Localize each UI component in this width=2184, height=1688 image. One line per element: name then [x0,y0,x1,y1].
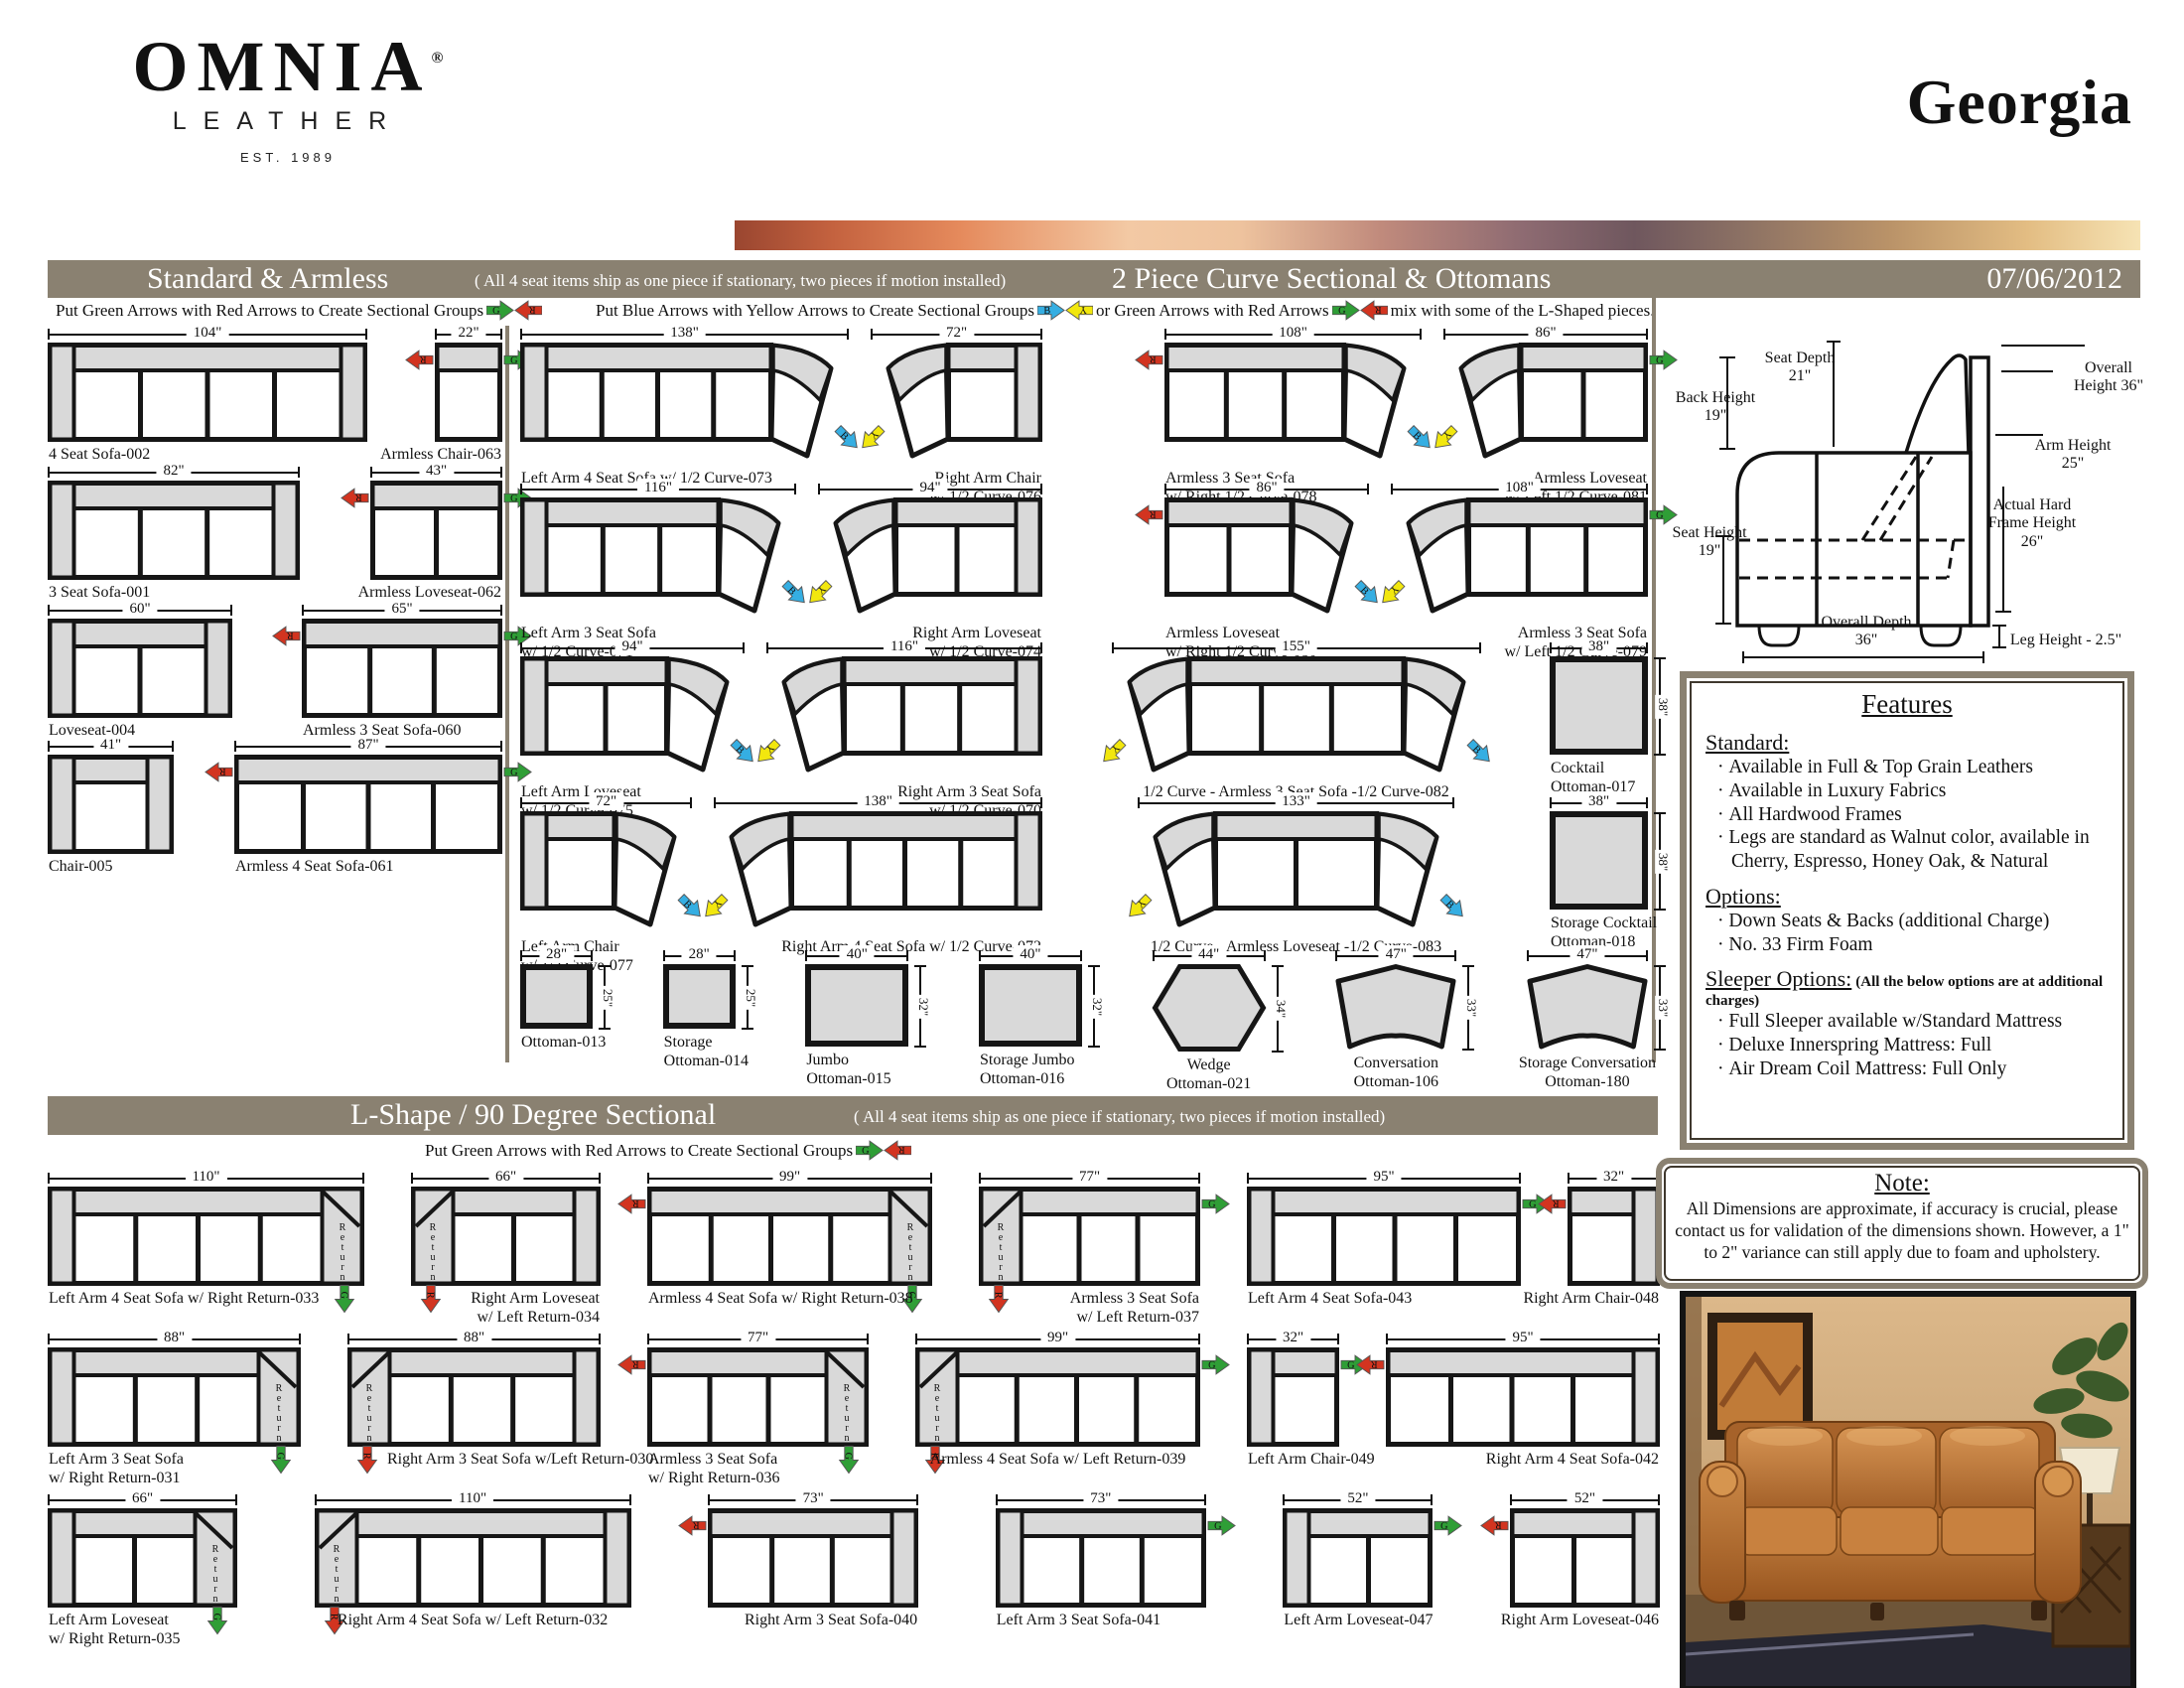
diagram-right-arm-loveseat-046: 52"RRight Arm Loveseat-046 [1510,1493,1660,1609]
green-arrow-icon: G [1208,1515,1236,1536]
diagram-armless-chair-063: 22"RGArmless Chair-063 [435,328,502,443]
diagram-conversation-ottoman-106: 47"33"ConversationOttoman-106 [1335,949,1456,1051]
diagram-label: Right Arm 4 Seat Sofa w/ Left Return-032 [338,1611,608,1629]
diagram-storage-ottoman-014: 28"25"StorageOttoman-014 [663,949,736,1030]
yellow-arrow-icon: Y [753,742,781,763]
svg-text:R: R [693,1519,700,1530]
diagram-left-arm-3-seat-sofa-w-right-return-031: 88"ReturnGLeft Arm 3 Seat Sofaw/ Right R… [48,1333,301,1448]
svg-text:R: R [1495,1519,1502,1530]
dim-overall-depth: Overall Depth 36" [1819,614,1914,650]
diagram-label: StorageOttoman-014 [664,1033,749,1070]
feature-item: No. 33 Firm Foam [1706,933,2109,957]
width-dimension: 47" [1335,949,1456,963]
height-dimension: 33" [1653,965,1667,1051]
width-dimension: 38" [1550,796,1648,810]
standard-armless-title: Standard & Armless [147,262,388,296]
width-dimension: 116" [520,483,796,496]
diagram-label: Left Arm 4 Seat Sofa-043 [1248,1289,1412,1308]
width-dimension: 138" [714,796,1042,810]
diagram-3-seat-sofa-001: 82"3 Seat Sofa-001 [48,466,300,581]
svg-text:G: G [510,493,518,504]
yellow-arrow-icon: Y [1065,300,1093,321]
height-dimension: 34" [1271,965,1285,1053]
diagram-label: Right Arm Chair-048 [1523,1289,1659,1308]
width-dimension: 108" [1391,483,1648,496]
diagram-left-arm-3-seat-sofa-041: 73"GLeft Arm 3 Seat Sofa-041 [996,1493,1206,1609]
diagram-left-arm-4-seat-sofa-w-right-return-033: 110"ReturnGLeft Arm 4 Seat Sofa w/ Right… [48,1172,364,1287]
feature-item: Deluxe Innerspring Mattress: Full [1706,1034,2109,1057]
diagram-armless-3-seat-sofa-w-left-return-037: 77"ReturnGRArmless 3 Seat Sofaw/ Left Re… [979,1172,1200,1287]
svg-text:n: n [845,1433,850,1444]
svg-text:R: R [420,353,427,364]
width-dimension: 52" [1283,1493,1433,1507]
diagram-label: Armless 4 Seat Sofa w/ Left Return-039 [930,1450,1186,1469]
red-arrow-icon: R [1135,504,1162,525]
diagram-label: Armless 4 Seat Sofa w/ Right Return-038 [648,1289,913,1308]
width-dimension: 95" [1247,1172,1521,1186]
red-arrow-icon: R [1480,1515,1508,1536]
svg-text:G: G [1208,1360,1216,1371]
standard-armless-subtitle: ( All 4 seat items ship as one piece if … [475,271,1006,291]
width-dimension: 86" [1164,483,1369,496]
divider-standard-curve [505,326,509,1062]
diagram-armless-3-seat-sofa-w-right-return-036: 77"ReturnRGArmless 3 Seat Sofaw/ Right R… [647,1333,869,1448]
diagram-1-2-curve-armless-loveseat-1-2-curve-083: 133"BY1/2 Curve - Armless Loveseat -1/2 … [1138,796,1454,935]
diagram-left-arm-4-seat-sofa-043: 95"GLeft Arm 4 Seat Sofa-043 [1247,1172,1521,1287]
height-dimension: 32" [1087,965,1101,1048]
sofa-photo [1680,1291,2136,1688]
red-arrow-icon: R [1356,1354,1384,1375]
section-bar-lshape: L-Shape / 90 Degree Sectional ( All 4 se… [48,1096,1658,1135]
features-group: Standard:Available in Full & Top Grain L… [1706,730,2109,874]
svg-text:G: G [1347,1360,1355,1371]
width-dimension: 94" [818,483,1042,496]
diagram-label: Storage JumboOttoman-016 [980,1051,1075,1088]
diagram-chair-005: 41"Chair-005 [48,740,174,855]
width-dimension: 47" [1527,949,1648,963]
yellow-arrow-icon: Y [1125,897,1153,917]
red-arrow-icon: R [678,1515,706,1536]
brand-est: EST. 1989 [79,150,496,165]
svg-text:G: G [842,1453,853,1461]
red-arrow-icon: R [985,1289,1013,1310]
width-dimension: 73" [996,1493,1206,1507]
diagram-armless-3-seat-sofa-w-right-1-2-curve-078: 108"RBArmless 3 Seat Sofaw/ Right 1/2 Cu… [1164,328,1422,467]
green-arrow-icon: G [267,1450,295,1471]
diagram-armless-3-seat-sofa-060: 65"RGArmless 3 Seat Sofa-060 [302,604,502,719]
width-dimension: 82" [48,466,300,480]
red-arrow-icon: R [417,1289,445,1310]
svg-text:R: R [632,1197,639,1208]
brand-sub: LEATHER [79,107,496,136]
width-dimension: 44" [1153,949,1266,963]
height-dimension: 32" [913,965,927,1048]
diagram-label: Armless 3 Seat Sofaw/ Right Return-036 [648,1450,779,1487]
red-arrow-icon: R [514,300,542,321]
width-dimension: 65" [302,604,502,618]
red-arrow-icon: R [884,1140,911,1161]
dim-leg-height: Leg Height - 2.5" [1991,632,2140,649]
width-dimension: 72" [871,328,1042,342]
diagram-storage-cocktail-ottoman-018: 38"38"Storage CocktailOttoman-018 [1550,796,1648,911]
red-arrow-icon: R [617,1354,645,1375]
diagram-label: Storage ConversationOttoman-180 [1519,1054,1656,1091]
features-box: Features Standard:Available in Full & To… [1680,671,2134,1150]
svg-text:G: G [1656,355,1664,366]
diagram-label: Right Arm Loveseat-046 [1501,1611,1659,1629]
features-group: Options:Down Seats & Backs (additional C… [1706,884,2109,957]
instruction-standard: Put Green Arrows with Red Arrows to Crea… [56,300,539,321]
diagram-label: Right Arm 3 Seat Sofa-040 [745,1611,917,1629]
feature-item: Full Sleeper available w/Standard Mattre… [1706,1010,2109,1034]
diagram-right-arm-4-seat-sofa-042: 95"RRight Arm 4 Seat Sofa-042 [1386,1333,1660,1448]
svg-text:n: n [277,1433,282,1444]
green-arrow-icon: G [856,1140,884,1161]
diagram-label: CocktailOttoman-017 [1551,759,1635,796]
svg-text:R: R [1371,1358,1378,1369]
height-dimension: 33" [1461,965,1475,1051]
diagram-jumbo-ottoman-015: 40"32"JumboOttoman-015 [805,949,908,1048]
width-dimension: 32" [1568,1172,1660,1186]
width-dimension: 99" [915,1333,1200,1346]
width-dimension: 88" [347,1333,601,1346]
feature-item: Available in Luxury Fabrics [1706,779,2109,803]
width-dimension: 22" [435,328,502,342]
diagram-label: Left Arm Loveseatw/ Right Return-035 [49,1611,180,1648]
svg-text:Y: Y [1079,304,1087,315]
svg-text:R: R [355,492,362,502]
svg-text:G: G [510,355,518,366]
diagram-label: Left Arm 3 Seat Sofa-041 [997,1611,1160,1629]
diagram-right-arm-4-seat-sofa-w-left-return-032: 110"ReturnRRight Arm 4 Seat Sofa w/ Left… [315,1493,631,1609]
svg-text:G: G [210,1614,221,1621]
width-dimension: 66" [411,1172,601,1186]
svg-text:n: n [334,1594,339,1605]
svg-text:G: G [510,632,518,642]
svg-text:G: G [1338,306,1346,317]
dim-back-height: Back Height 19" [1670,389,1761,426]
svg-text:n: n [431,1272,436,1283]
svg-text:G: G [1440,1521,1448,1532]
green-arrow-icon: G [1202,1194,1230,1214]
width-dimension: 28" [520,949,593,963]
diagram-wedge-ottoman-021: 44"34"WedgeOttoman-021 [1153,949,1266,1053]
width-dimension: 32" [1247,1333,1339,1346]
red-arrow-icon: R [1538,1194,1566,1214]
diagram-left-arm-3-seat-sofa-w-1-2-curve-071: 116"BLeft Arm 3 Seat Sofaw/ 1/2 Curve-07… [520,483,796,622]
svg-text:n: n [935,1433,940,1444]
width-dimension: 40" [805,949,908,963]
svg-text:n: n [367,1433,372,1444]
diagram-right-arm-3-seat-sofa-w-1-2-curve-070: 116"YRight Arm 3 Seat Sofaw/ 1/2 Curve-0… [766,641,1042,780]
green-arrow-icon: G [331,1289,358,1310]
width-dimension: 43" [370,466,502,480]
svg-text:n: n [999,1272,1004,1283]
note-box: Note: All Dimensions are approximate, if… [1656,1158,2148,1289]
blue-arrow-icon: B [1439,897,1467,917]
width-dimension: 72" [520,796,692,810]
diagram-right-arm-3-seat-sofa-040: 73"RRight Arm 3 Seat Sofa-040 [708,1493,918,1609]
red-arrow-icon: R [405,350,433,370]
diagram-label: Left Arm 4 Seat Sofa w/ Right Return-033 [49,1289,319,1308]
diagram-left-arm-chair-w-1-2-curve-077: 72"BLeft Arm Chairw/ 1/2 Curve-077 [520,796,692,935]
width-dimension: 60" [48,604,232,618]
svg-text:R: R [1374,304,1381,315]
lshape-subtitle: ( All 4 seat items ship as one piece if … [854,1107,1385,1127]
yellow-arrow-icon: Y [805,583,833,604]
width-dimension: 116" [766,641,1042,655]
width-dimension: 87" [234,740,502,754]
width-dimension: 94" [520,641,745,655]
width-dimension: 52" [1510,1493,1660,1507]
dim-frame-height: Actual Hard Frame Height 26" [1985,496,2079,551]
diagram-label: Right Arm Loveseatw/ Left Return-034 [471,1289,600,1327]
sheet-date: 07/06/2012 [1986,262,2122,296]
diagram-label: Armless Loveseat-062 [358,583,501,602]
diagram-right-arm-loveseat-w-left-return-034: 66"ReturnRRight Arm Loveseatw/ Left Retu… [411,1172,601,1287]
feature-item: Available in Full & Top Grain Leathers [1706,756,2109,779]
diagram-left-arm-chair-049: 32"GLeft Arm Chair-049 [1247,1333,1339,1448]
feature-item: Down Seats & Backs (additional Charge) [1706,910,2109,933]
diagram-right-arm-4-seat-sofa-w-1-2-curve-072: 138"YRight Arm 4 Seat Sofa w/ 1/2 Curve-… [714,796,1042,935]
svg-text:G: G [862,1146,870,1157]
svg-text:R: R [424,1292,435,1299]
diagram-left-arm-4-seat-sofa-w-1-2-curve-073: 138"BLeft Arm 4 Seat Sofa w/ 1/2 Curve-0… [520,328,849,467]
feature-item: All Hardwood Frames [1706,803,2109,827]
section-bar-standard-curve: Standard & Armless ( All 4 seat items sh… [48,260,2140,298]
diagram-left-arm-loveseat-w-right-return-035: 66"ReturnGLeft Arm Loveseatw/ Right Retu… [48,1493,237,1609]
width-dimension: 110" [315,1493,631,1507]
svg-text:R: R [360,1453,371,1460]
width-dimension: 95" [1386,1333,1660,1346]
registered-mark: ® [432,50,444,67]
red-arrow-icon: R [617,1194,645,1214]
spec-sheet-page: OMNIA® LEATHER EST. 1989 Georgia Standar… [0,0,2184,1688]
note-title: Note: [1874,1170,1930,1197]
width-dimension: 38" [1550,641,1648,655]
width-dimension: 88" [48,1333,301,1346]
width-dimension: 73" [708,1493,918,1507]
svg-text:G: G [338,1292,348,1300]
svg-text:G: G [1529,1199,1537,1210]
red-arrow-icon: R [272,626,300,646]
dim-arm-height: Arm Height 25" [2031,437,2115,474]
red-arrow-icon: R [353,1450,381,1471]
features-title: Features [1706,689,2109,720]
diagram-cocktail-ottoman-017: 38"38"CocktailOttoman-017 [1550,641,1648,756]
svg-text:R: R [1150,353,1157,364]
svg-text:R: R [219,766,226,776]
brand-name: OMNIA® [79,30,496,105]
diagram-armless-4-seat-sofa-061: 87"RGArmless 4 Seat Sofa-061 [234,740,502,855]
svg-text:R: R [898,1144,905,1155]
green-arrow-icon: G [204,1611,231,1631]
svg-text:R: R [632,1358,639,1369]
feature-item: Legs are standard as Walnut color, avail… [1706,826,2109,874]
blue-arrow-icon: B [1037,300,1065,321]
svg-text:G: G [1208,1199,1216,1210]
dim-overall-height: Overall Height 36" [2067,359,2150,396]
width-dimension: 99" [647,1172,932,1186]
diagram-label: Left Arm Loveseat-047 [1284,1611,1433,1629]
green-arrow-icon: G [1434,1515,1462,1536]
features-group: Sleeper Options: (All the below options … [1706,966,2109,1080]
width-dimension: 138" [520,328,849,342]
diagram-label: Left Arm Chair-049 [1248,1450,1375,1469]
svg-text:R: R [1150,508,1157,519]
instruction-curve: Put Blue Arrows with Yellow Arrows to Cr… [596,300,1654,321]
red-arrow-icon: R [1360,300,1388,321]
width-dimension: 66" [48,1493,237,1507]
svg-text:R: R [287,630,294,640]
diagram-right-arm-3-seat-sofa-w-left-return-030: 88"ReturnRRight Arm 3 Seat Sofa w/Left R… [347,1333,601,1448]
height-dimension: 38" [1653,812,1667,911]
diagram-1-2-curve-armless-3-seat-sofa-1-2-curve-082: 155"BY1/2 Curve - Armless 3 Seat Sofa -1… [1112,641,1481,780]
width-dimension: 133" [1138,796,1454,810]
diagram-right-arm-loveseat-w-1-2-curve-074: 94"YRight Arm Loveseatw/ 1/2 Curve-074 [818,483,1042,622]
dim-seat-height: Seat Height 19" [1670,524,1749,561]
leather-gradient-strip [735,220,2140,250]
diagram-armless-4-seat-sofa-w-left-return-039: 99"ReturnGRArmless 4 Seat Sofa w/ Left R… [915,1333,1200,1448]
green-arrow-icon: G [1202,1354,1230,1375]
diagram-armless-loveseat-w-right-1-2-curve-080: 86"RBArmless Loveseatw/ Right 1/2 Curve-… [1164,483,1369,622]
yellow-arrow-icon: Y [1099,742,1127,763]
diagram-label: Left Arm 3 Seat Sofaw/ Right Return-031 [49,1450,184,1487]
dim-seat-depth: Seat Depth 21" [1760,350,1840,386]
note-text: All Dimensions are approximate, if accur… [1674,1198,2130,1264]
svg-text:B: B [1043,306,1050,317]
diagram-right-arm-chair-048: 32"RRight Arm Chair-048 [1568,1172,1660,1287]
width-dimension: 77" [979,1172,1200,1186]
diagram-label: Right Arm 3 Seat Sofa w/Left Return-030 [387,1450,653,1469]
green-arrow-icon: G [1332,300,1360,321]
svg-text:n: n [341,1272,345,1283]
curve-section-title: 2 Piece Curve Sectional & Ottomans [1112,262,1551,296]
width-dimension: 110" [48,1172,364,1186]
svg-text:R: R [992,1292,1003,1299]
page-title: Georgia [1537,66,2132,139]
width-dimension: 155" [1112,641,1481,655]
height-dimension: 25" [598,965,612,1030]
diagram-armless-loveseat-062: 43"RGArmless Loveseat-062 [370,466,502,581]
width-dimension: 108" [1164,328,1422,342]
blue-arrow-icon: B [1466,742,1494,763]
green-arrow-icon: G [486,300,514,321]
diagram-storage-conversation-ottoman-180: 47"33"Storage ConversationOttoman-180 [1527,949,1648,1051]
width-dimension: 77" [647,1333,869,1346]
yellow-arrow-icon: Y [1431,428,1458,449]
diagram-label: ConversationOttoman-106 [1354,1054,1438,1091]
height-dimension: 25" [741,965,754,1030]
diagram-armless-loveseat-w-left-1-2-curve-081: 86"GYArmless Loveseatw/ Left 1/2 Curve-0… [1443,328,1648,467]
svg-text:G: G [274,1453,285,1461]
svg-text:n: n [908,1272,913,1283]
diagram-label: Armless 4 Seat Sofa-061 [235,857,394,876]
svg-text:n: n [213,1594,218,1605]
diagram-label: Armless 3 Seat Sofaw/ Left Return-037 [1070,1289,1199,1327]
width-dimension: 41" [48,740,174,754]
red-arrow-icon: R [1135,350,1162,370]
diagram-left-arm-loveseat-047: 52"GLeft Arm Loveseat-047 [1283,1493,1433,1609]
diagram-left-arm-loveseat-w-1-2-curve-075: 94"BLeft Arm Loveseatw/ 1/2 Curve-075 [520,641,745,780]
width-dimension: 28" [663,949,736,963]
diagram-label: JumboOttoman-015 [806,1051,890,1088]
svg-text:G: G [510,768,518,778]
height-dimension: 38" [1653,657,1667,756]
brand-logo: OMNIA® LEATHER EST. 1989 [79,30,496,165]
width-dimension: 86" [1443,328,1648,342]
diagram-right-arm-chair-w-1-2-curve-076: 72"YRight Arm Chairw/ 1/2 Curve-076 [871,328,1042,467]
red-arrow-icon: R [341,488,368,508]
lshape-title: L-Shape / 90 Degree Sectional [350,1098,716,1132]
diagram-label: Chair-005 [49,857,113,876]
green-arrow-icon: G [835,1450,863,1471]
width-dimension: 104" [48,328,367,342]
yellow-arrow-icon: Y [858,428,886,449]
svg-text:G: G [1656,510,1664,521]
yellow-arrow-icon: Y [1378,583,1406,604]
diagram-label: Ottoman-013 [521,1033,606,1052]
feature-item: Air Dream Coil Mattress: Full Only [1706,1057,2109,1081]
diagram-loveseat-004: 60"Loveseat-004 [48,604,232,719]
svg-text:G: G [492,306,500,317]
diagram-storage-jumbo-ottoman-016: 40"32"Storage JumboOttoman-016 [979,949,1082,1048]
svg-text:R: R [1553,1197,1560,1208]
instruction-lshape: Put Green Arrows with Red Arrows to Crea… [425,1140,908,1161]
diagram-4-seat-sofa-002: 104"4 Seat Sofa-002 [48,328,367,443]
svg-text:R: R [529,304,536,315]
diagram-armless-3-seat-sofa-w-left-1-2-curve-079: 108"GYArmless 3 Seat Sofaw/ Left 1/2 Cur… [1391,483,1648,622]
diagram-label: WedgeOttoman-021 [1166,1055,1251,1093]
yellow-arrow-icon: Y [701,897,729,917]
diagram-label: 4 Seat Sofa-002 [49,445,150,464]
svg-text:G: G [1214,1521,1222,1532]
diagram-label: Right Arm 4 Seat Sofa-042 [1486,1450,1659,1469]
diagram-ottoman-013: 28"25"Ottoman-013 [520,949,593,1030]
red-arrow-icon: R [205,762,232,782]
width-dimension: 40" [979,949,1082,963]
diagram-armless-4-seat-sofa-w-right-return-038: 99"ReturnRGArmless 4 Seat Sofa w/ Right … [647,1172,932,1287]
